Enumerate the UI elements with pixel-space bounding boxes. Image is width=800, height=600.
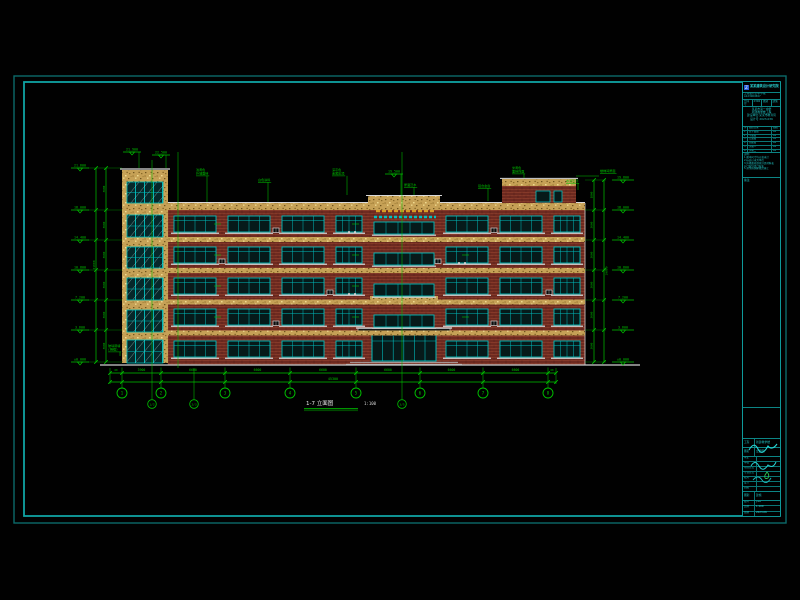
window-sill (497, 295, 545, 296)
material-label: 楼梯间屋面 (600, 168, 615, 173)
window-sill (225, 358, 273, 359)
window-sill (551, 264, 583, 265)
vent-dot (458, 262, 460, 264)
signature-row: 制图 (743, 487, 780, 491)
facade-band (168, 237, 585, 242)
level-value-left: 7.200 (75, 296, 85, 300)
window-sill (279, 233, 327, 234)
sheet-table-cell: 立面图 (748, 138, 772, 141)
dim-value-vertical: 3600 (590, 251, 594, 258)
material-label: 屋面泛水 (404, 182, 417, 187)
project-info: 某某市第一中学新建教学楼工程建设单位:某某市教育局设计号 2023-036 (743, 107, 780, 127)
level-value-right: 19.800 (617, 176, 629, 180)
window-sill (279, 264, 327, 265)
drawing-title: 1-7 立面图 (306, 399, 334, 407)
figure-type-row: 图别 建施 (743, 492, 780, 501)
window-sill (372, 235, 436, 236)
sheet-table-cell: 详图二 (748, 150, 772, 153)
signature-role: 制图 (743, 487, 757, 491)
dim-value: 6600 (512, 368, 520, 372)
vent-dot (348, 231, 350, 233)
window-sill (497, 358, 545, 359)
window-sill (372, 297, 436, 298)
project-name-rows: 工程新建教学楼图名立面图 (743, 439, 780, 457)
dim-total-left: 21600 (92, 260, 96, 269)
window-sill (279, 326, 327, 327)
note-line: 5.其余按国家规范施工 (744, 168, 779, 171)
penthouse-band (502, 179, 576, 186)
window-sill (225, 233, 273, 234)
secondary-grid-bubble-label: 3/5 (399, 402, 404, 406)
sheet-table-cell: 详图一 (748, 146, 772, 149)
facade-band (168, 268, 585, 273)
company-name: 某某建筑设计研究院 (750, 85, 779, 89)
sheet-table-cell: A2 (772, 142, 780, 145)
kv-value: 新建教学楼 (755, 441, 780, 444)
window-sill (443, 295, 491, 296)
sheet-table-cell: 剖面图 (748, 142, 772, 145)
dim-value-vertical: 1800 (590, 191, 594, 198)
dim-value: 60 (550, 368, 554, 372)
window-sill (372, 328, 436, 329)
tower-top-level: 22.500 (155, 151, 167, 155)
dim-value-vertical: 3600 (102, 185, 106, 192)
grid-key: 比例 (743, 506, 755, 510)
material-label: 面砖饰面 (512, 169, 524, 174)
vent-dot (348, 293, 350, 295)
sheet-table-cell: 平面图 (748, 135, 772, 138)
level-value-right: 10.800 (617, 266, 629, 270)
window-sill (333, 264, 365, 265)
dim-total-right: 19800 (604, 266, 608, 275)
general-notes: 说明:1.图中尺寸均以毫米计2.标高以米为单位3.外墙面砖颜色详见材料表4.门窗… (743, 153, 780, 178)
contract-cell: 2306 (753, 100, 763, 106)
penthouse-window (536, 191, 550, 202)
dim-value: 6600 (319, 368, 327, 372)
dim-value-vertical: 3600 (102, 342, 106, 349)
dim-value-vertical: 3600 (102, 251, 106, 258)
cad-viewport: 1-7 立面图 1:100 21.60018.00014.40010.8007.… (0, 0, 800, 600)
project-kv-row: 图名立面图 (743, 448, 780, 457)
window-sill (551, 233, 583, 234)
window-sill (279, 295, 327, 296)
dim-value-vertical: 3600 (590, 281, 594, 288)
remarks-box: 备注 (743, 178, 780, 408)
corridor-window (374, 253, 434, 265)
material-label: (明框) (108, 347, 118, 352)
facade-band (168, 331, 585, 336)
material-label: 外墙面砖 (196, 171, 208, 176)
window-sill (225, 295, 273, 296)
level-value-left: 14.400 (74, 236, 86, 240)
grid-key: 日期 (743, 512, 755, 516)
dim-value-vertical: 3600 (590, 342, 594, 349)
cad-canvas: 1-7 立面图 1:100 21.60018.00014.40010.8007.… (0, 0, 800, 600)
contract-cell: 合同号 (743, 100, 753, 106)
level-value-left: 3.600 (75, 326, 85, 330)
stamp-box (743, 408, 780, 439)
window-sill (443, 264, 491, 265)
facade-band (168, 203, 585, 210)
window-sill (225, 326, 273, 327)
vent-dot (464, 262, 466, 264)
sheet-table-cell: 总平面图 (748, 131, 772, 134)
dim-value: 6600 (189, 368, 197, 372)
level-value-left: 21.600 (74, 164, 86, 168)
corridor-window (374, 222, 434, 234)
sheet-table-cell: A2 (772, 131, 780, 134)
dim-total-bottom: 45300 (328, 377, 338, 381)
window-sill (333, 326, 365, 327)
project-kv-row: 工程新建教学楼 (743, 439, 780, 448)
grid-row: 日期2023.06 (743, 512, 780, 516)
grid-value: 1:100 (755, 506, 780, 510)
vent-dot (354, 293, 356, 295)
kv-key: 工程 (743, 439, 755, 447)
window-sill (443, 358, 491, 359)
grid-value: 2023.06 (755, 512, 780, 516)
level-value-right: ±0.000 (617, 358, 629, 362)
contract-cell: 建施 (772, 100, 781, 106)
sheet-table-cell: A2 (772, 146, 780, 149)
level-value-right: 3.600 (618, 326, 628, 330)
material-label: 白色涂料 (258, 177, 270, 182)
window-sill (497, 233, 545, 234)
kv-value: 立面图 (755, 450, 780, 453)
level-value-left: 10.800 (74, 266, 86, 270)
title-block-header: Z 某某建筑设计研究院 (743, 82, 780, 93)
window-sill (443, 326, 491, 327)
contract-cells: 合同号2306图别建施 (743, 100, 780, 107)
signature-role: 审核 (743, 462, 757, 466)
drawing-scale: 1:100 (364, 401, 377, 406)
sheet-table-header-cell: 图幅 (772, 127, 780, 130)
window-sill (551, 326, 583, 327)
corridor-window (374, 284, 434, 296)
level-value-left: ±0.000 (74, 358, 86, 362)
number-scale-date-grid: 图号J-06比例1:100日期2023.06 (743, 501, 780, 516)
window-sill (497, 264, 545, 265)
penthouse-window (554, 191, 562, 202)
certificate-line: 工程设计证书 甲级 A123004567 (743, 93, 780, 100)
dim-value-vertical: 3600 (590, 311, 594, 318)
figure-type-value: 建施 (755, 494, 780, 497)
dim-value: 6600 (384, 368, 392, 372)
contract-cell: 图别 (762, 100, 772, 106)
material-label: 铝合金窗 (478, 183, 490, 188)
signature-role: 设计 (743, 482, 757, 486)
remarks-label: 备注 (744, 179, 750, 182)
sheet-table-cell: A2 (772, 135, 780, 138)
dim-value-vertical: 3600 (102, 311, 106, 318)
material-label: 水泥压顶 (566, 178, 578, 183)
signature-role: 校对 (743, 477, 757, 481)
level-value-right: 7.200 (618, 296, 628, 300)
figure-type-label: 图别 (743, 492, 755, 500)
central-band (368, 196, 440, 204)
sheet-table-header-cell: 图纸目录 (748, 127, 772, 130)
dim-value-vertical: 3600 (590, 221, 594, 228)
level-value-right: 14.400 (617, 236, 629, 240)
dim-value-vertical: 3600 (102, 221, 106, 228)
dim-value: 60 (114, 368, 118, 372)
sheet-table-cell: A2 (772, 138, 780, 141)
window-sill (279, 358, 327, 359)
central-top-level: 19.500 (388, 170, 400, 174)
level-value-right: 18.000 (617, 206, 629, 210)
window-sill (443, 233, 491, 234)
window-sill (497, 326, 545, 327)
project-line: 设计号 2023-036 (744, 118, 779, 121)
secondary-grid-bubble-label: 1/2 (149, 402, 154, 406)
sheet-table-cell: A2 (772, 150, 780, 153)
kv-key: 图名 (743, 448, 755, 456)
material-label: 金属压顶 (332, 171, 344, 176)
window-sill (225, 264, 273, 265)
corridor-window (374, 315, 434, 327)
sheet-index-table: 序图纸目录图幅1总平面图A22平面图A23立面图A24剖面图A25详图一A26详… (743, 127, 780, 153)
dim-value: 3900 (138, 368, 146, 372)
title-block: Z 某某建筑设计研究院 工程设计证书 甲级 A123004567 合同号2306… (742, 82, 781, 516)
dim-value-vertical: 3600 (102, 281, 106, 288)
dim-value: 6600 (254, 368, 262, 372)
window-sill (551, 358, 583, 359)
level-value-left: 18.000 (74, 206, 86, 210)
window-sill (372, 266, 436, 267)
signature-role: 审定 (743, 457, 757, 461)
company-logo: Z (744, 85, 749, 90)
window-sill (551, 295, 583, 296)
secondary-grid-bubble-label: 2/3 (191, 402, 196, 406)
signature-table: 审定审核项目负责专业负责校对设计制图 (743, 457, 780, 492)
signature-role: 专业负责 (743, 472, 757, 476)
dim-value: 6600 (448, 368, 456, 372)
signature-role: 项目负责 (743, 467, 757, 471)
window-sill (333, 358, 365, 359)
tower-top-level: 21.900 (126, 148, 138, 152)
vent-dot (354, 231, 356, 233)
